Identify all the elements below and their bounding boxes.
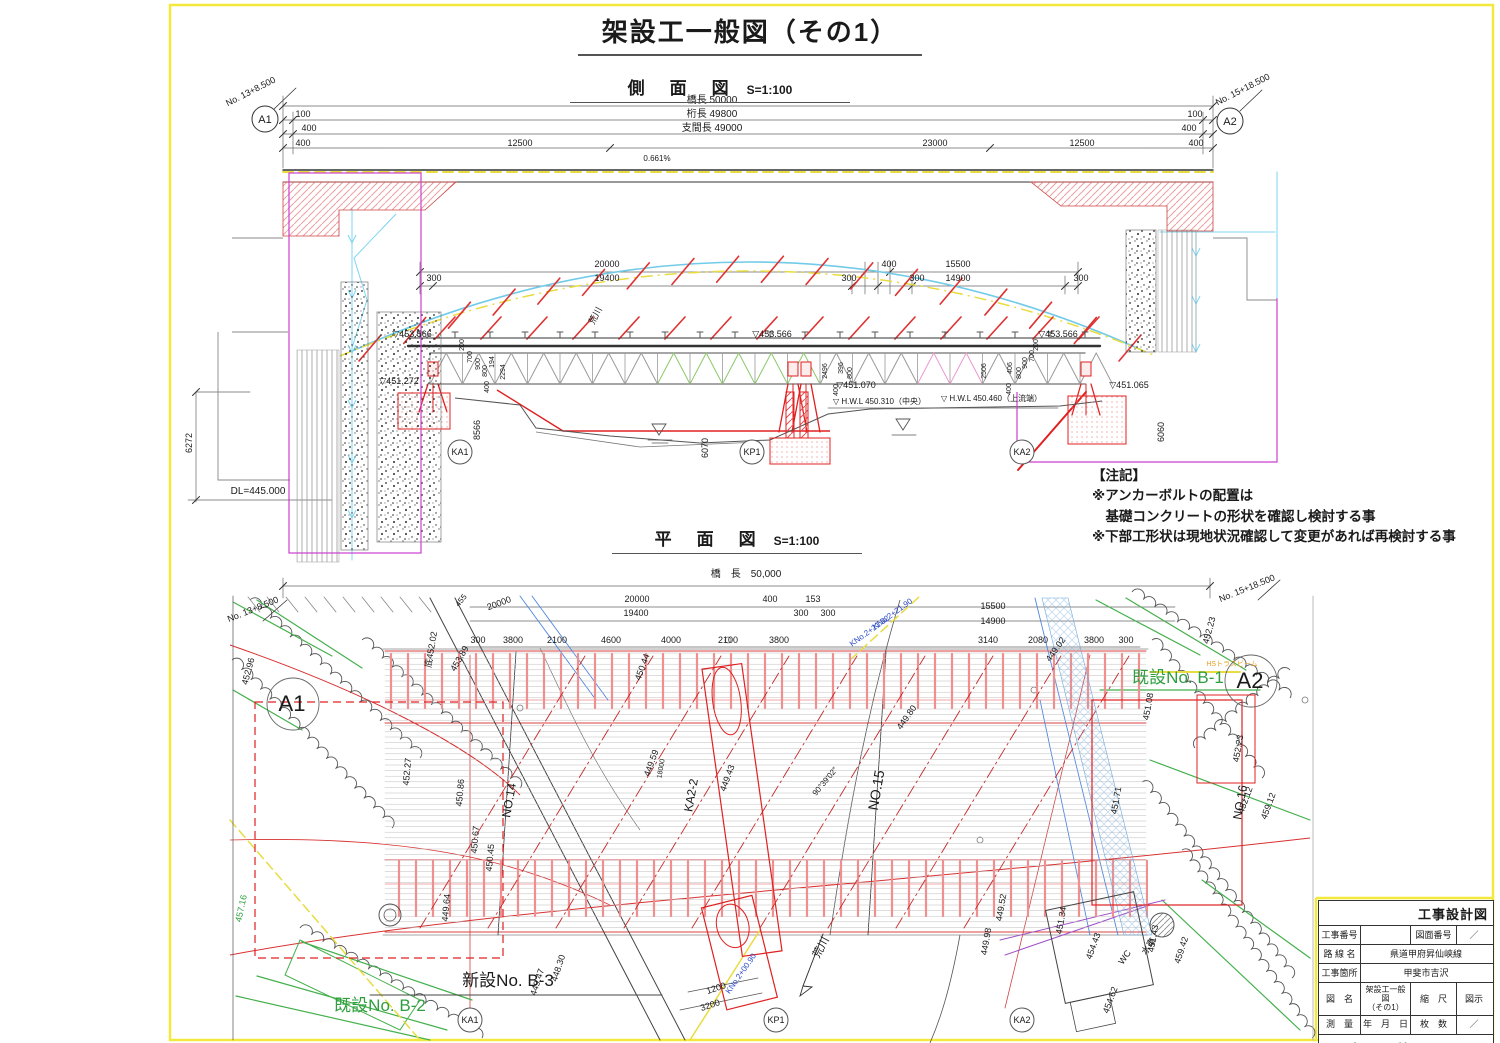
plan-view-label: 459.12 [1259,791,1278,820]
slope-tick [400,597,412,612]
truss-diag [593,353,609,384]
side-view-label: ▽453.566 [752,329,791,339]
hatch-mark [665,317,685,339]
plan-view-title: 平 面 図 [655,530,760,549]
existing-structure-green [1202,880,1310,958]
ground-line [455,398,1102,443]
side-view-label: 12500 [1069,138,1094,148]
plan-view-label: 454.43 [1084,931,1103,960]
survey-point [517,705,523,711]
right-ground-steps [1213,238,1277,300]
existing-structure-green [1162,900,1300,1030]
side-view-label: 20000 [594,259,619,269]
plan-view-label: 454.62 [1101,985,1120,1014]
truss-diag [771,353,787,384]
plan-view-label: 400 [762,594,777,604]
side-view-label: 6070 [700,438,710,458]
page-title: 架設工一般図（その1） [578,12,922,56]
side-view-label: 400 [295,138,310,148]
side-view-label: KP1 [743,447,760,457]
rock-contour [1182,849,1315,1038]
side-view-label: 23000 [922,138,947,148]
existing-structure-green [1150,760,1310,820]
truss-diag [658,353,674,384]
construction-no-label: 工事番号 [1319,926,1361,944]
dim-line [680,993,762,1010]
hatch-mark [985,289,1007,315]
plan-view-labels: 橋 長 50,000No. 13+8.500No. 15+18.50020000… [226,567,1278,1025]
plan-view-label: 455 [453,592,469,608]
plan-view-label: 18000 [656,758,666,778]
rock-contour [232,658,394,828]
truss-diag [1064,353,1080,384]
side-view-label: 桁長 49800 [687,107,738,120]
slope-tick [381,597,393,612]
slope-tick [362,597,374,612]
side-view-label: ▽453.566 [1038,329,1077,339]
title-block-row: 図 名 架設工一般図 （その1） 縮 尺 図示 [1319,983,1493,1016]
plan-view-label: 300 [820,608,835,618]
plan-view-label: 449.98 [979,927,994,956]
scale-label: 縮 尺 [1411,983,1457,1015]
plan-view-label: 新設No. B-3 [462,971,554,990]
side-view-label: No. 15+18.500 [1214,71,1271,107]
survey-label: 測 量 [1319,1016,1361,1034]
route-label: 路 線 名 [1319,945,1361,963]
side-view-label: 800 [482,365,489,377]
side-view-label: 19400 [594,273,619,283]
slope-tick [419,597,431,612]
trestle-leg [811,384,820,432]
truss-diag [641,353,657,384]
plan-view-label: 1200 [705,980,727,996]
truss-diag [755,353,771,384]
route-value: 県道甲府昇仙峡線 [1361,945,1491,963]
side-view-label: 0.661% [643,154,670,163]
plan-view-label: 2080 [1028,635,1048,645]
truss-diag [901,353,917,384]
side-view-label: 396 [838,362,845,374]
truss-diag [560,353,576,384]
side-view-label: 900 [475,358,482,370]
bearing-block [1081,362,1091,376]
plan-view-label: A2 [1237,668,1264,693]
channel-line [536,432,760,447]
truss-diag [1048,353,1064,384]
plan-view-label: 457.16 [233,894,249,923]
drawing-no-value: ／ [1457,926,1491,944]
scale-value: 図示 [1457,983,1491,1015]
manhole [379,904,401,926]
side-view-label: DL=445.000 [231,486,286,497]
title-block-row: 路 線 名 県道甲府昇仙峡線 [1319,945,1493,964]
note-line: 基礎コンクリートの形状を確認し検討する事 [1092,507,1500,527]
plan-view-label: 既設No. B-2 [334,996,426,1015]
right-wall-hatch [1158,230,1196,352]
location-value: 甲斐市吉沢 [1361,964,1491,982]
plan-view-label: 2100 [718,635,738,645]
sheets-label: 枚 数 [1411,1016,1457,1034]
truss-diag [609,353,625,384]
side-view-label: KA1 [451,447,468,457]
side-view-label: No. 13+8.500 [224,75,277,109]
slope-tick [343,597,355,612]
plan-view-label: 449.80 [895,703,919,731]
lateral-brace [828,656,993,928]
water-mark [896,419,910,430]
side-view-label: ▽ H.W.L 450.310（中央） [833,396,926,406]
title-block-row: 工事箇所 甲斐市吉沢 [1319,964,1493,983]
plan-view-label: 450.67 [469,826,481,854]
side-view-label: 12500 [507,138,532,148]
side-view-label: 400 [1188,138,1203,148]
location-label: 工事箇所 [1319,964,1361,982]
side-view-label: 100 [1187,109,1202,119]
rock-contour [250,598,422,758]
plan-view-label: No. 15+18.500 [1218,572,1277,603]
title-block-row: 工事番号 図面番号 ／ [1319,926,1493,945]
truss-diag [511,353,527,384]
plan-view-label: 荒川 [810,935,832,961]
title-block-header: 工事設計図 [1319,901,1493,926]
title-block-row: 測 量 年 月 日 枚 数 ／ [1319,1016,1493,1035]
water-mark [652,424,666,435]
side-view-label: 2294 [500,364,507,380]
plan-view-label: 153 [805,594,820,604]
side-view-label: A1 [258,114,271,126]
plan-view-label: 20000 [624,594,649,604]
truss-diag [544,353,560,384]
plan-view-label: 15500 [980,601,1005,611]
side-view-label: 2496 [822,363,829,379]
side-view-label: ▽451.272 [379,376,418,386]
plan-view-label: KNo.2+21.02 [848,613,892,648]
hatch-mark [803,317,823,339]
hatch-mark [619,317,639,339]
plan-view-label: NO.15 [865,769,888,812]
truss-diag [625,353,641,384]
plan-view-label: 4000 [661,635,681,645]
existing-structure-green [1126,598,1246,670]
plan-view-label: 449.52 [994,893,1009,922]
left-abutment-speckle [341,282,368,550]
side-view-label: A2 [1223,116,1236,128]
plan-view-heading: 平 面 図S=1:100 [612,525,862,554]
deck-end-right [1031,182,1213,231]
right-abutment-speckle [1126,230,1156,352]
hatch-mark [1079,317,1099,339]
side-view-label: 6272 [184,433,194,453]
rock-contour [1152,639,1265,778]
side-view-label: 300 [1073,273,1088,283]
prefecture-value: 山 梨 県 [1319,1035,1493,1043]
side-view-label: 800 [847,367,854,379]
plan-view-label: 300 [1118,635,1133,645]
plan-view-label: 14900 [980,616,1005,626]
plan-view-label: 449.43 [718,763,737,792]
existing-structure-green [257,600,362,668]
plan-view-label: 既設No. B-1 [1132,668,1224,687]
side-view-label: 400 [301,123,316,133]
plan-view-label: 90°39′02″ [811,765,840,797]
side-view-label: 14900 [945,273,970,283]
side-view-label: ▽453.566 [392,329,431,339]
hatch-mark [849,317,869,339]
truss-diag [706,353,722,384]
side-view-label: 700 [467,351,474,363]
lateral-brace [760,656,925,928]
hatch-mark [717,256,739,282]
right-footing [1068,396,1126,444]
existing-structure-green [302,942,472,1000]
truss-diag [885,353,901,384]
sheets-value: ／ [1457,1016,1491,1034]
plan-view-label: 300 [470,635,485,645]
pier-column [786,392,794,438]
plan-view-label: KNo.2+00.90 [724,951,759,995]
plan-view-label: 300 [793,608,808,618]
side-view-label: 8566 [472,420,482,440]
plan-view-label: 450.45 [484,844,496,872]
plan-view-label: HSトラスビーム [1206,659,1257,668]
note-line: ※アンカーボルトの配置は [1092,486,1500,506]
plan-view-label: 3800 [1084,635,1104,645]
side-view-label: 200 [459,339,466,351]
title-block: 工事設計図 工事番号 図面番号 ／ 路 線 名 県道甲府昇仙峡線 工事箇所 甲斐… [1318,900,1494,1043]
side-view-label: 900 [1022,357,1029,369]
side-view-label: 300 [426,273,441,283]
side-view-label: 6060 [1156,422,1166,442]
plan-view-label: 450.86 [454,779,466,807]
survey-point [1302,697,1308,703]
side-view-label: 200 [1033,339,1040,351]
drawing-no-label: 図面番号 [1411,926,1457,944]
side-view-scale: S=1:100 [747,83,793,97]
plan-view-label: 3800 [769,635,789,645]
side-view-label: 300 [909,273,924,283]
drawing-name-label: 図 名 [1319,983,1361,1015]
side-view-label: 300 [841,273,856,283]
side-view-label: 2506 [981,363,988,379]
side-view-label: 400 [484,381,491,393]
hatch-mark [987,317,1007,339]
truss-diag [934,353,950,384]
a1-work-area [255,702,503,958]
side-view-label: ▽ H.W.L 450.460（上流端） [941,393,1042,403]
plan-view-label: KA2-2 [681,777,701,813]
side-view-label: 194 [489,356,496,368]
lateral-brace [896,656,1061,928]
plan-view-label: KA1 [461,1015,478,1025]
slope-tick [286,597,298,612]
side-view-label: 400 [881,259,896,269]
plan-view-label: 452.23 [1201,616,1218,645]
plan-view-label: WC [1116,948,1133,966]
side-view-title: 側 面 図 [628,79,733,98]
hatch-mark [711,317,731,339]
plan-view-label: 20000 [486,594,513,612]
river-arrowhead [800,986,812,996]
plan-view-label: A1 [279,691,306,716]
truss-diag [723,353,739,384]
drawing-sheet: No. 13+8.500A1No. 15+18.500A2橋長 50000100… [0,0,1500,1043]
plan-view-scale: S=1:100 [774,534,820,548]
truss-diag [950,353,966,384]
truss-diag [528,353,544,384]
plan-view-label: 452.23 [1231,734,1246,763]
notes-header: 【注記】 [1092,466,1500,486]
notes-block: 【注記】 ※アンカーボルトの配置は 基礎コンクリートの形状を確認し検討する事 ※… [1092,466,1500,547]
side-view-label: ▽451.065 [1109,380,1148,390]
construction-no-value [1361,926,1411,944]
title-block-row: 山 梨 県 [1319,1035,1493,1043]
slope-tick [324,597,336,612]
truss-diag [690,353,706,384]
side-view-heading: 側 面 図S=1:100 [570,74,850,103]
hatch-mark [448,302,470,328]
side-view-label: 400 [1181,123,1196,133]
plan-view-label: 3800 [503,635,523,645]
plan-view-label: 451.08 [1141,692,1156,721]
survey-value: 年 月 日 [1361,1016,1411,1034]
plan-deck-band [385,653,1147,928]
slope-tick [305,597,317,612]
truss-diag [918,353,934,384]
plan-view-label: 3140 [978,635,998,645]
side-view-label: 支間長 49000 [682,122,743,134]
rock-contour [300,925,483,1038]
hatch-mark [493,289,515,315]
hatch-mark [672,258,694,284]
side-view-label: 406 [1007,362,1014,374]
center-pier-footing [770,438,830,464]
deck-end-left [283,182,456,236]
plan-view-label: 3200 [699,997,721,1013]
plan-view-label: 4600 [601,635,621,645]
hatch-mark [1030,302,1052,328]
plan-view-label: 450.44 [633,652,652,681]
plan-view-label: KA2 [1013,1015,1030,1025]
side-view-label: 400 [1006,383,1013,395]
left-footing [398,393,450,429]
truss-diag [674,353,690,384]
note-line: ※下部工形状は現地状況確認して変更があれば再検討する事 [1092,527,1500,547]
truss-diag [576,353,592,384]
plan-view-graphics [230,578,1315,1043]
lateral-brace [692,656,857,928]
truss-diag [739,353,755,384]
hatch-mark [538,278,560,304]
contour [930,935,960,1043]
bearing-block [801,362,811,376]
side-view-label: 100 [295,109,310,119]
hatch-mark [941,317,961,339]
hatch-mark [481,317,501,339]
hatch-mark [527,317,547,339]
left-ground-steps [218,238,290,480]
plan-view-label: 橋 長 50,000 [711,567,782,580]
hatch-mark [895,317,915,339]
plan-view-label: 459.42 [1172,935,1190,964]
side-view-label: KA2 [1013,447,1030,457]
plan-view-label: 19400 [623,608,648,618]
side-view-label: ▽451.070 [836,380,875,390]
plan-view-label: KP1 [767,1015,784,1025]
blue-line [520,596,596,700]
drawing-name-value: 架設工一般図 （その1） [1361,983,1411,1015]
hatch-mark [806,258,828,284]
hatch-mark [761,256,783,282]
side-view-label: 400 [833,384,840,396]
side-view-label: 15500 [945,259,970,269]
left-wall-hatch [297,350,339,562]
truss-diag [446,353,462,384]
side-view-label: 荒川 [587,305,604,326]
pier-column [800,392,808,438]
bearing-block [788,362,798,376]
plan-view-label: 2100 [547,635,567,645]
plan-view-label: 449.64 [440,894,452,922]
